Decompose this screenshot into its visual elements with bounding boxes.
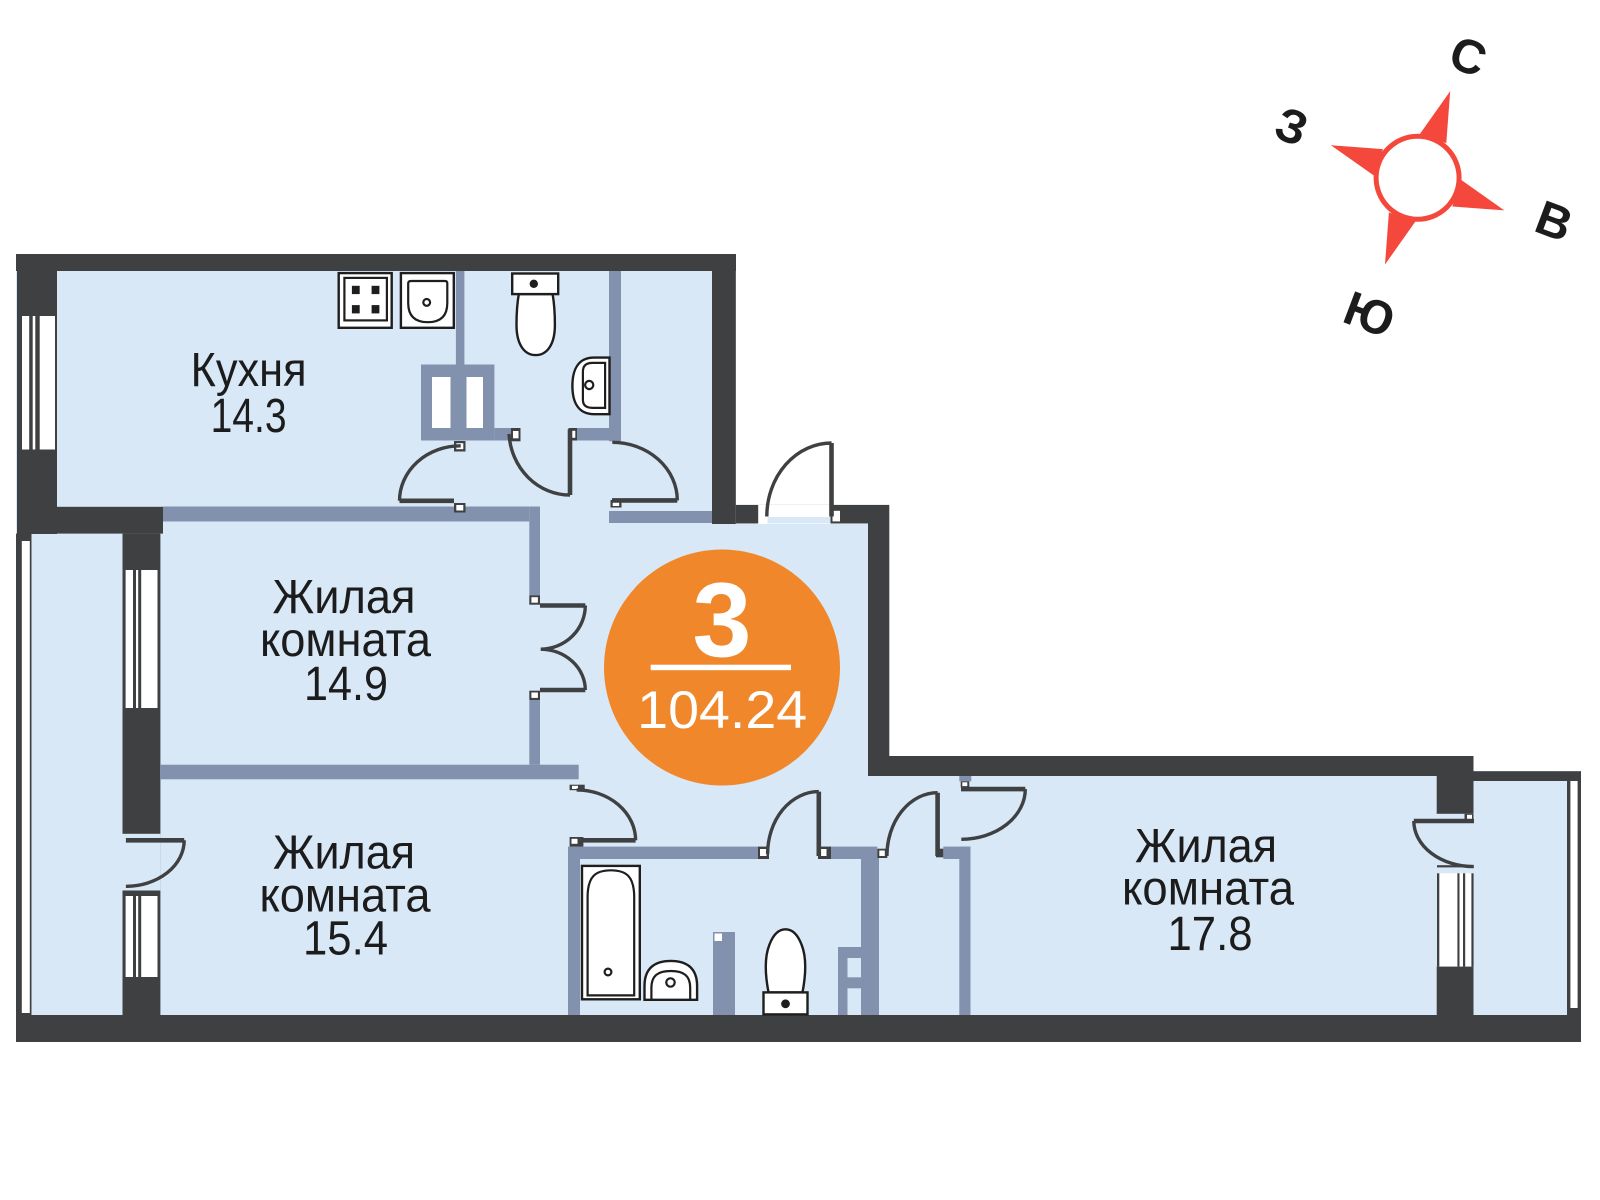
svg-text:С: С — [1442, 26, 1493, 88]
svg-text:Ю: Ю — [1337, 282, 1402, 349]
svg-text:14.9: 14.9 — [304, 658, 388, 711]
svg-text:3: 3 — [693, 562, 752, 680]
svg-text:В: В — [1528, 191, 1579, 253]
svg-text:14.3: 14.3 — [211, 390, 287, 443]
svg-text:104.24: 104.24 — [637, 681, 807, 740]
svg-text:17.8: 17.8 — [1168, 908, 1253, 961]
svg-text:15.4: 15.4 — [303, 913, 388, 966]
svg-text:З: З — [1268, 97, 1315, 157]
